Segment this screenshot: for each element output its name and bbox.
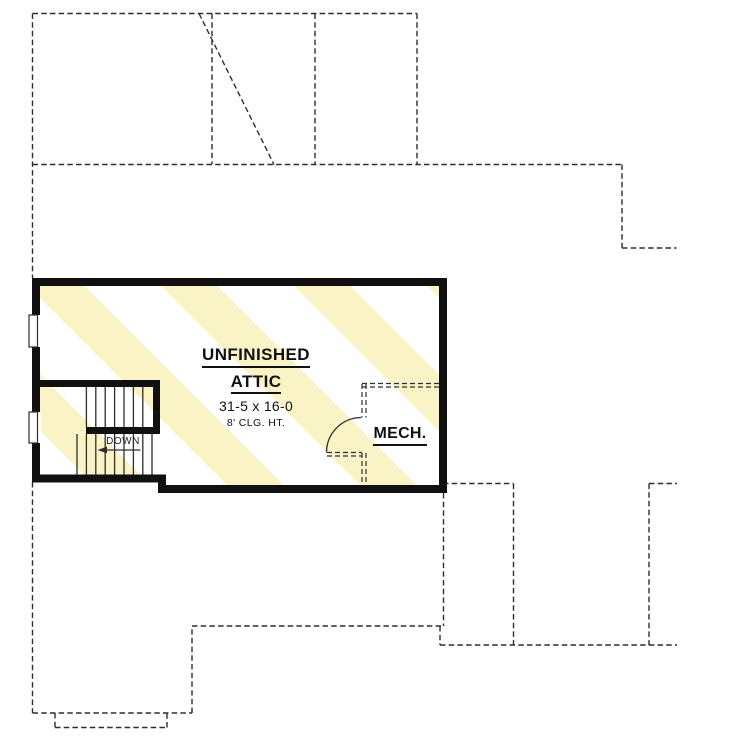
wall-bottom-left xyxy=(32,475,166,483)
roofline-dashed-outline-upper xyxy=(33,14,677,279)
stairs-down-label: DOWN xyxy=(102,436,144,448)
floor-plan-canvas: UNFINISHED ATTIC 31-5 x 16-0 8' CLG. HT.… xyxy=(0,0,750,737)
room-name-line1: UNFINISHED xyxy=(156,345,356,368)
mech-room-label: MECH. xyxy=(352,425,448,446)
roofline-dashed-outline-lower xyxy=(33,482,678,728)
stairwell-wall-mid xyxy=(86,427,160,434)
stairwell-wall-top xyxy=(32,380,160,387)
room-label: UNFINISHED ATTIC 31-5 x 16-0 8' CLG. HT. xyxy=(156,345,356,429)
room-ceiling-height: 8' CLG. HT. xyxy=(156,417,356,429)
floor-plan-drawing xyxy=(0,0,750,737)
wall-top xyxy=(32,278,447,286)
wall-right xyxy=(439,278,447,493)
room-name-line2: ATTIC xyxy=(156,372,356,395)
window-1 xyxy=(29,315,38,347)
wall-bottom-right xyxy=(158,485,447,493)
window-2 xyxy=(29,412,38,443)
room-dimensions: 31-5 x 16-0 xyxy=(156,398,356,414)
